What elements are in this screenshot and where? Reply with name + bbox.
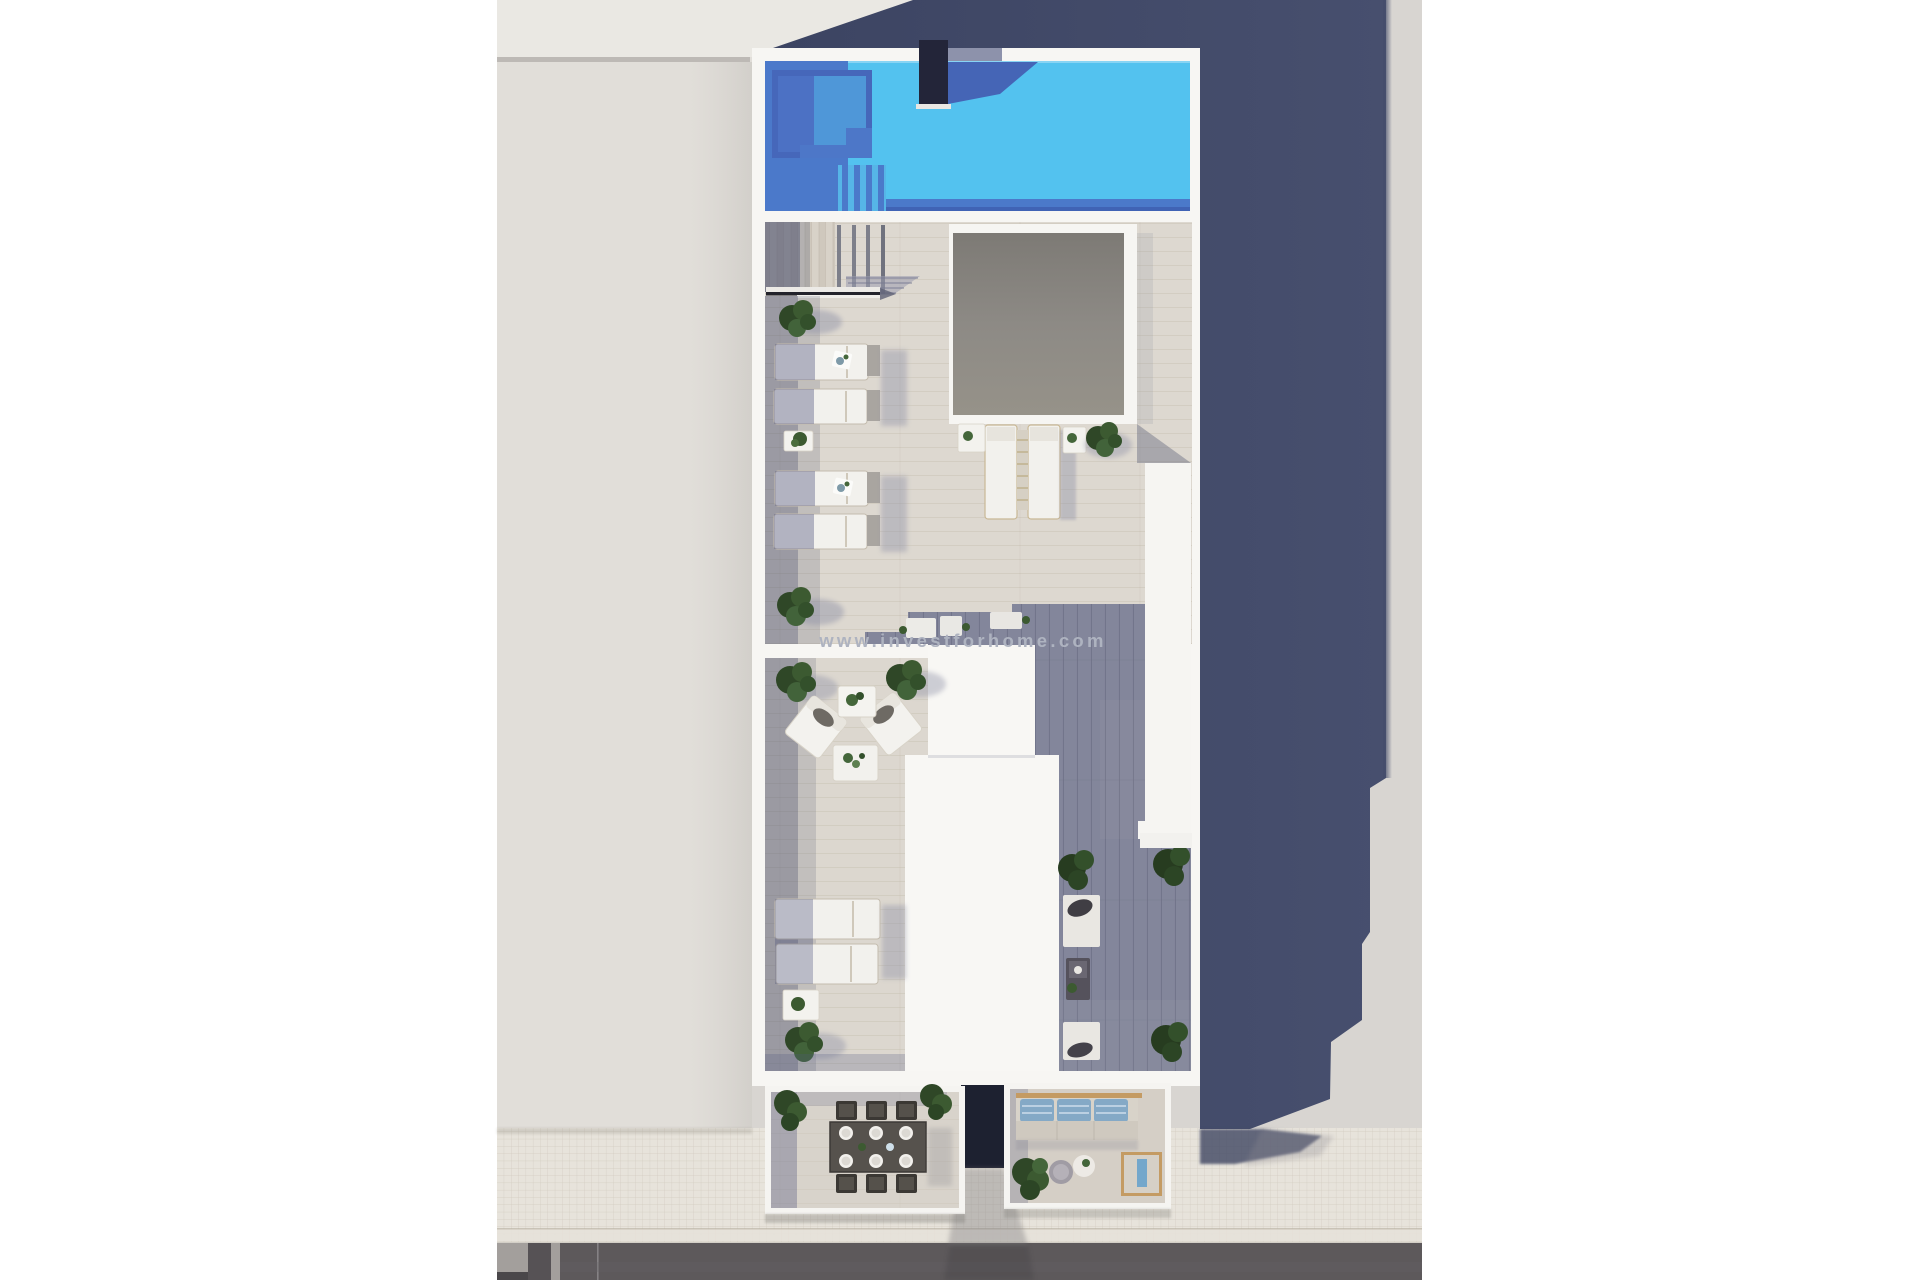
svg-text:www.investforhome.com: www.investforhome.com (818, 630, 1107, 651)
